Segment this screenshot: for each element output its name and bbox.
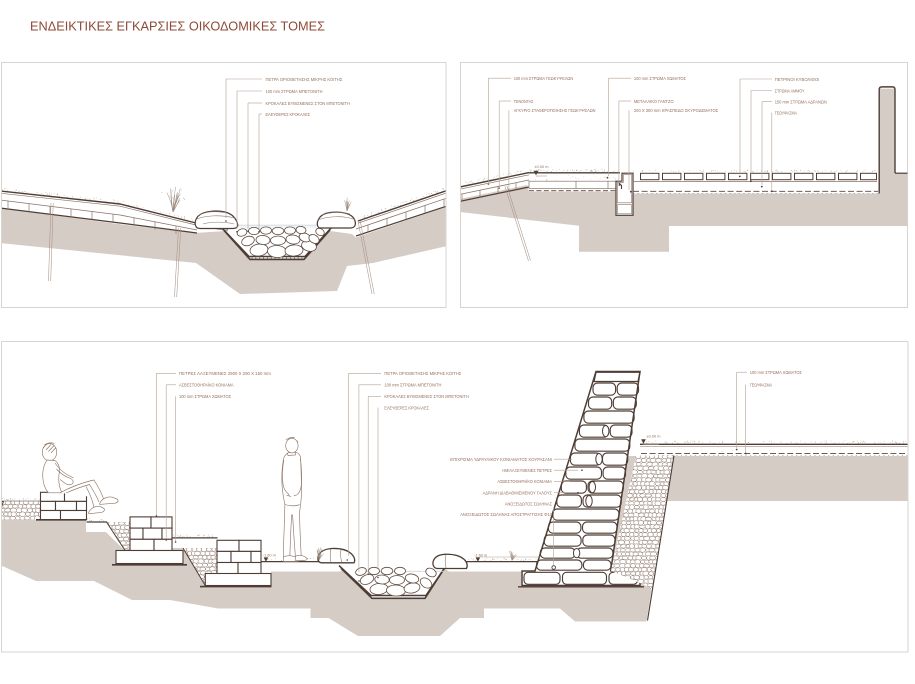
svg-text:ΚΡΟΚΑΛΕΣ ΒΥΘΙΣΜΕΝΕΣ ΣΤΟΝ ΜΠΕΤΟ: ΚΡΟΚΑΛΕΣ ΒΥΘΙΣΜΕΝΕΣ ΣΤΟΝ ΜΠΕΤΟΝΙΤΗ: [384, 394, 468, 399]
svg-text:100 mm ΣΤΡΩΜΑ ΧΩΜΑΤΟΣ: 100 mm ΣΤΡΩΜΑ ΧΩΜΑΤΟΣ: [750, 370, 802, 375]
svg-text:100 mm ΣΤΡΩΜΑ ΧΩΜΑΤΟΣ: 100 mm ΣΤΡΩΜΑ ΧΩΜΑΤΟΣ: [634, 76, 686, 81]
svg-text:100 mm ΣΤΡΩΜΑ ΧΩΜΑΤΟΣ: 100 mm ΣΤΡΩΜΑ ΧΩΜΑΤΟΣ: [179, 394, 231, 399]
svg-text:ΑΔΡΑΝΗ ΔΙΑΒΑΘΜΙΣΜΕΝΟΥ ΓΑΛΟΥΣ: ΑΔΡΑΝΗ ΔΙΑΒΑΘΜΙΣΜΕΝΟΥ ΓΑΛΟΥΣ: [483, 490, 553, 495]
svg-text:ΠΕΤΡΕΣ ΛΑΞΕΥΜΕΝΕΣ 2900 X 290 X: ΠΕΤΡΕΣ ΛΑΞΕΥΜΕΝΕΣ 2900 X 290 X 150 mm: [179, 371, 271, 376]
svg-text:-1.60 m: -1.60 m: [474, 552, 487, 557]
svg-text:ΜΕΤΑΛΛΙΚΟ ΓΑΝΤΖΟ: ΜΕΤΑΛΛΙΚΟ ΓΑΝΤΖΟ: [634, 99, 674, 104]
svg-text:ΗΜΙΛΑΞΕΥΜΕΝΕΣ ΠΕΤΡΕΣ: ΗΜΙΛΑΞΕΥΜΕΝΕΣ ΠΕΤΡΕΣ: [502, 468, 552, 473]
svg-text:ΠΕΤΡΑ ΟΡΙΟΘΕΤΗΣΗΣ ΜΙΚΡΗΣ ΚΟΙΤΗ: ΠΕΤΡΑ ΟΡΙΟΘΕΤΗΣΗΣ ΜΙΚΡΗΣ ΚΟΙΤΗΣ: [266, 77, 343, 82]
svg-text:ΑΓΚΥΡΙΟ ΣΤΑΘΕΡΟΠΟΙΗΣΗΣ ΓΕΩΚΥΨΕ: ΑΓΚΥΡΙΟ ΣΤΑΘΕΡΟΠΟΙΗΣΗΣ ΓΕΩΚΥΨΕΛΩΝ: [514, 108, 596, 113]
svg-text:±0.00 m: ±0.00 m: [647, 433, 661, 438]
svg-text:ΑΣΒΕΣΤΟΘΗΡΑΪΚΟ ΚΟΝΙΑΜΑ: ΑΣΒΕΣΤΟΘΗΡΑΪΚΟ ΚΟΝΙΑΜΑ: [179, 382, 234, 388]
svg-text:-1.60 m: -1.60 m: [263, 552, 276, 557]
svg-text:ΕΠΙΧΡΙΣΜΑ ΥΔΡΑΥΛΙΚΟΥ ΚΟΝΙΑΜΑΤΟ: ΕΠΙΧΡΙΣΜΑ ΥΔΡΑΥΛΙΚΟΥ ΚΟΝΙΑΜΑΤΟΣ ΚΟΥΡΑΣΑΝ…: [450, 457, 552, 462]
svg-text:ΕΝΔΕΙΚΤΙΚΕΣ ΕΓΚΑΡΣΙΕΣ ΟΙΚΟΔΟΜΙ: ΕΝΔΕΙΚΤΙΚΕΣ ΕΓΚΑΡΣΙΕΣ ΟΙΚΟΔΟΜΙΚΕΣ ΤΟΜΕΣ: [30, 19, 325, 34]
svg-text:ΑΝΟΞΕΙΔΩΤΟΣ ΣΩΛΗΝΑΣ ΑΠΟΣΤΡΑΓΓΙ: ΑΝΟΞΕΙΔΩΤΟΣ ΣΩΛΗΝΑΣ ΑΠΟΣΤΡΑΓΓΙΣΗΣ Φ10: [460, 512, 552, 517]
svg-text:ΑΝΟΞΕΙΔΩΤΟΣ ΣΩΛΗΝΑΣ: ΑΝΟΞΕΙΔΩΤΟΣ ΣΩΛΗΝΑΣ: [505, 501, 552, 506]
svg-text:ΤΕΝΟΝΤΑΣ: ΤΕΝΟΝΤΑΣ: [514, 99, 534, 104]
svg-text:100 mm ΣΤΡΩΜΑ ΜΠΕΤΟΝΙΤΗ: 100 mm ΣΤΡΩΜΑ ΜΠΕΤΟΝΙΤΗ: [384, 383, 441, 388]
svg-text:ΚΡΟΚΑΛΕΣ ΒΥΘΙΣΜΕΝΕΣ ΣΤΟΝ ΜΠΕΤΟ: ΚΡΟΚΑΛΕΣ ΒΥΘΙΣΜΕΝΕΣ ΣΤΟΝ ΜΠΕΤΟΝΙΤΗ: [266, 101, 350, 106]
svg-text:ΓΕΩΥΦΑΣΜΑ: ΓΕΩΥΦΑΣΜΑ: [750, 382, 773, 387]
svg-text:ΕΛΕΥΘΕΡΕΣ ΚΡΟΚΑΛΕΣ: ΕΛΕΥΘΕΡΕΣ ΚΡΟΚΑΛΕΣ: [384, 405, 429, 410]
svg-text:±0.00 m: ±0.00 m: [535, 164, 549, 169]
svg-text:ΕΛΕΥΘΕΡΕΣ ΚΡΟΚΑΛΕΣ: ΕΛΕΥΘΕΡΕΣ ΚΡΟΚΑΛΕΣ: [266, 112, 311, 117]
svg-text:ΠΕΤΡΙΝΟΙ ΚΥΒΟΛΙΘΟΙ: ΠΕΤΡΙΝΟΙ ΚΥΒΟΛΙΘΟΙ: [775, 77, 820, 82]
svg-text:ΑΣΒΕΣΤΟΘΗΡΑΪΚΟ ΚΟΝΙΑΜΑ: ΑΣΒΕΣΤΟΘΗΡΑΪΚΟ ΚΟΝΙΑΜΑ: [497, 478, 552, 484]
svg-text:100 mm ΣΤΡΩΜΑ ΓΕΩΚΥΨΕΛΩΝ: 100 mm ΣΤΡΩΜΑ ΓΕΩΚΥΨΕΛΩΝ: [514, 76, 574, 81]
svg-text:ΣΤΡΩΜΑ ΑΜΜΟΥ: ΣΤΡΩΜΑ ΑΜΜΟΥ: [775, 88, 805, 93]
svg-text:150 mm ΣΤΡΩΜΑ ΑΔΡΑΝΩΝ: 150 mm ΣΤΡΩΜΑ ΑΔΡΑΝΩΝ: [775, 99, 827, 104]
svg-text:ΓΕΩΥΦΑΣΜΑ: ΓΕΩΥΦΑΣΜΑ: [775, 110, 798, 115]
svg-text:200 X 300 mm ΚΡΑΣΠΕΔΟ ΣΚΥΡΟΔΕΜ: 200 X 300 mm ΚΡΑΣΠΕΔΟ ΣΚΥΡΟΔΕΜΑΤΟΣ: [634, 108, 718, 113]
svg-text:100 mm ΣΤΡΩΜΑ ΜΠΕΤΟΝΙΤΗ: 100 mm ΣΤΡΩΜΑ ΜΠΕΤΟΝΙΤΗ: [266, 89, 323, 94]
svg-text:ΠΕΤΡΑ ΟΡΙΟΘΕΤΗΣΗΣ ΜΙΚΡΗΣ ΚΟΙΤΗ: ΠΕΤΡΑ ΟΡΙΟΘΕΤΗΣΗΣ ΜΙΚΡΗΣ ΚΟΙΤΗΣ: [384, 371, 461, 376]
